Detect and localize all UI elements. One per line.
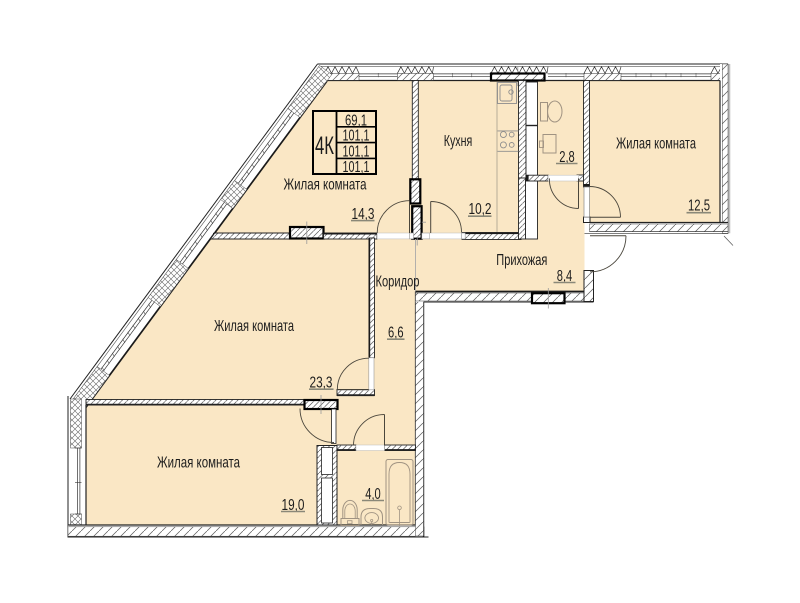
svg-text:Коридор: Коридор bbox=[376, 274, 420, 291]
svg-text:Жилая комната: Жилая комната bbox=[157, 455, 240, 472]
svg-text:101,1: 101,1 bbox=[343, 128, 370, 145]
svg-text:Жилая комната: Жилая комната bbox=[284, 177, 367, 194]
svg-text:Прихожая: Прихожая bbox=[496, 252, 547, 269]
svg-text:4К: 4К bbox=[315, 132, 334, 160]
svg-text:Жилая комната: Жилая комната bbox=[214, 318, 294, 335]
svg-text:101,1: 101,1 bbox=[343, 159, 370, 176]
svg-text:Жилая комната: Жилая комната bbox=[616, 136, 696, 153]
svg-text:101,1: 101,1 bbox=[343, 143, 370, 160]
svg-text:Кухня: Кухня bbox=[444, 133, 473, 150]
